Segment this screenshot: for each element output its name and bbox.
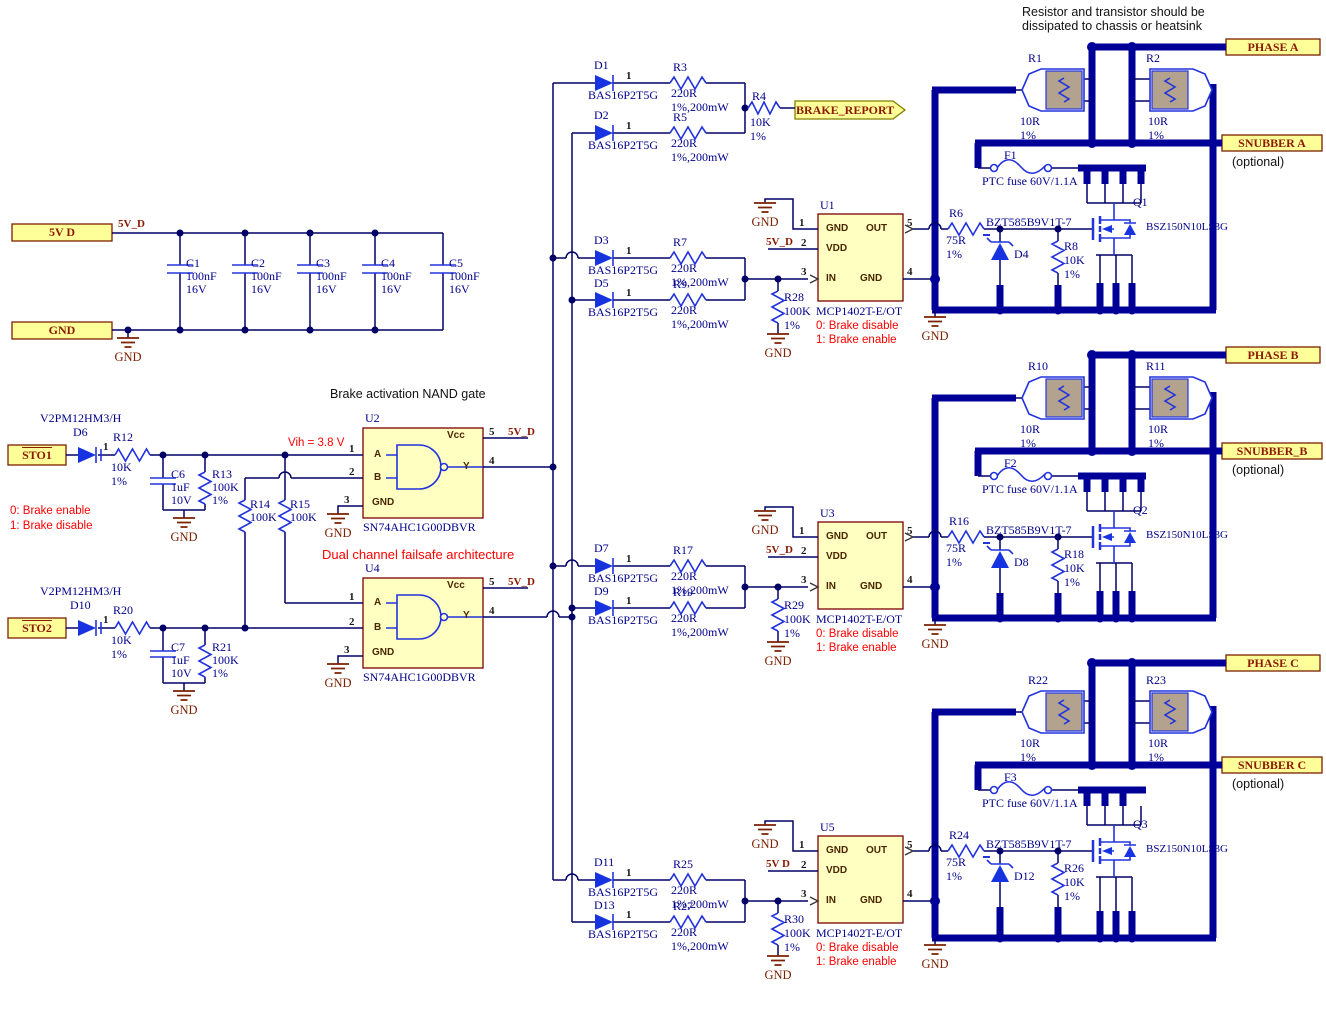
flag-phase-c-shape (1226, 655, 1320, 671)
chip-bodies (363, 214, 903, 923)
component-symbols (78, 69, 1212, 965)
schematic-canvas (0, 0, 1326, 1010)
u1-body (818, 214, 903, 301)
flag-snubber-a-shape (1222, 135, 1322, 151)
schematic-page: Resistor and transistor should bedissipa… (0, 0, 1326, 1010)
flag-snubber-c-shape (1222, 757, 1322, 773)
flag-sto1-shape (8, 445, 66, 465)
power-buses (932, 47, 1226, 938)
flag-sto2-shape (8, 618, 66, 638)
diode-triangles (78, 75, 1136, 930)
flag-phase-b-shape (1226, 347, 1320, 363)
signal-wires (66, 79, 1213, 956)
flag-brake-report-shape (795, 101, 905, 119)
flag-5vd-shape (12, 224, 112, 241)
u5-body (818, 836, 903, 923)
resistor-icons-h (115, 77, 984, 928)
junction-dots (128, 108, 1058, 901)
diode-bars (96, 75, 613, 930)
flag-gnd-shape (12, 322, 112, 339)
flag-snubber-b-shape (1222, 443, 1322, 459)
flag-phase-a-shape (1226, 39, 1320, 55)
u3-body (818, 522, 903, 609)
